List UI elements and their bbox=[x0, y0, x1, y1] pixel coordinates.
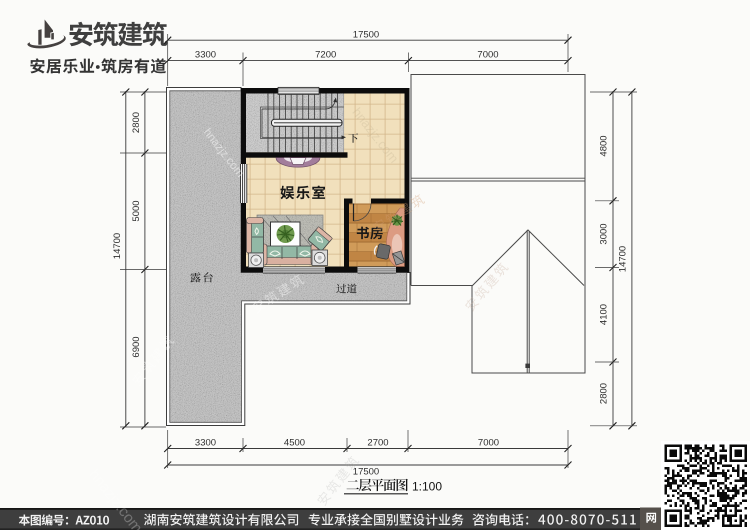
svg-text:7200: 7200 bbox=[315, 50, 336, 61]
svg-text:5000: 5000 bbox=[131, 200, 142, 221]
svg-text:3300: 3300 bbox=[195, 50, 216, 61]
svg-text:2700: 2700 bbox=[367, 438, 388, 449]
svg-text:1:100: 1:100 bbox=[412, 480, 442, 494]
svg-text:7000: 7000 bbox=[478, 438, 499, 449]
svg-text:6900: 6900 bbox=[131, 336, 142, 357]
svg-text:2800: 2800 bbox=[599, 383, 610, 404]
svg-text:2800: 2800 bbox=[131, 112, 142, 133]
svg-text:3300: 3300 bbox=[195, 438, 216, 449]
svg-text:14700: 14700 bbox=[112, 233, 123, 259]
svg-text:17500: 17500 bbox=[353, 30, 379, 41]
svg-text:17500: 17500 bbox=[353, 467, 379, 478]
svg-text:4100: 4100 bbox=[599, 304, 610, 325]
svg-text:4500: 4500 bbox=[284, 438, 305, 449]
svg-text:14700: 14700 bbox=[618, 246, 629, 272]
svg-text:4800: 4800 bbox=[599, 135, 610, 156]
svg-text:7000: 7000 bbox=[477, 50, 498, 61]
svg-text:3000: 3000 bbox=[599, 223, 610, 244]
